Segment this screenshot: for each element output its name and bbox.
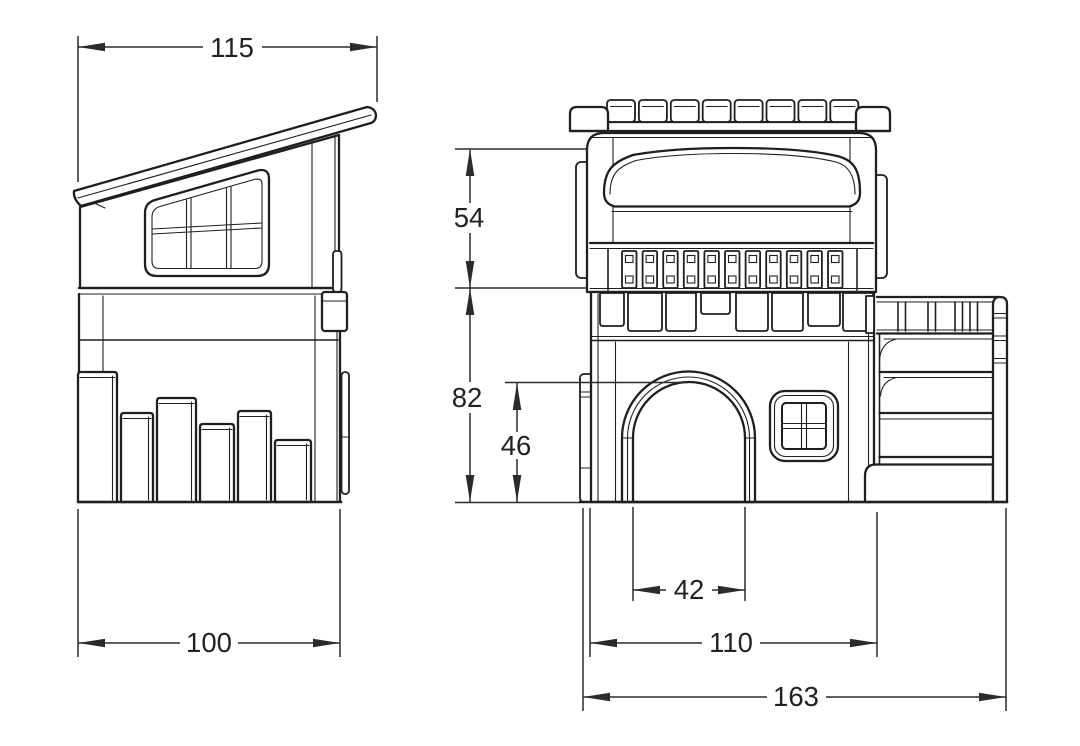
front-square-window <box>770 391 838 461</box>
body-width-dimension-label: 110 <box>709 627 753 658</box>
dimension-upper-height: 54 <box>454 149 588 288</box>
technical-drawing-canvas: 115 100 <box>0 0 1080 746</box>
front-arch-opening <box>604 148 860 212</box>
front-view: 54 82 46 42 <box>452 100 1007 712</box>
dimension-door-width: 42 <box>633 507 745 605</box>
upper-height-dimension-label: 54 <box>454 202 485 233</box>
door-width-dimension-label: 42 <box>674 574 705 605</box>
stair-base-block <box>865 465 993 503</box>
base-width-dimension-label: 100 <box>186 627 232 658</box>
lower-height-dimension-label: 82 <box>452 382 483 413</box>
drawing-page: 115 100 <box>0 0 1080 746</box>
stair-left-post <box>866 296 874 333</box>
overall-width-dimension-label: 163 <box>773 681 819 712</box>
front-corbel-blocks <box>600 293 873 331</box>
side-view: 115 100 <box>74 32 377 658</box>
stair-steps <box>880 334 994 463</box>
door-height-dimension-label: 46 <box>501 430 532 461</box>
side-handrail <box>342 372 350 494</box>
roof-width-dimension-label: 115 <box>210 32 254 63</box>
side-floor-band <box>79 288 340 340</box>
front-staircase <box>865 296 1007 502</box>
front-door <box>622 372 755 503</box>
stair-railing <box>877 297 1000 334</box>
stair-right-rail <box>993 297 1007 502</box>
side-slats <box>78 372 311 502</box>
front-crenellation <box>570 100 890 131</box>
dimension-overall-width: 163 <box>583 508 1006 712</box>
dimension-base-width: 100 <box>78 509 340 658</box>
